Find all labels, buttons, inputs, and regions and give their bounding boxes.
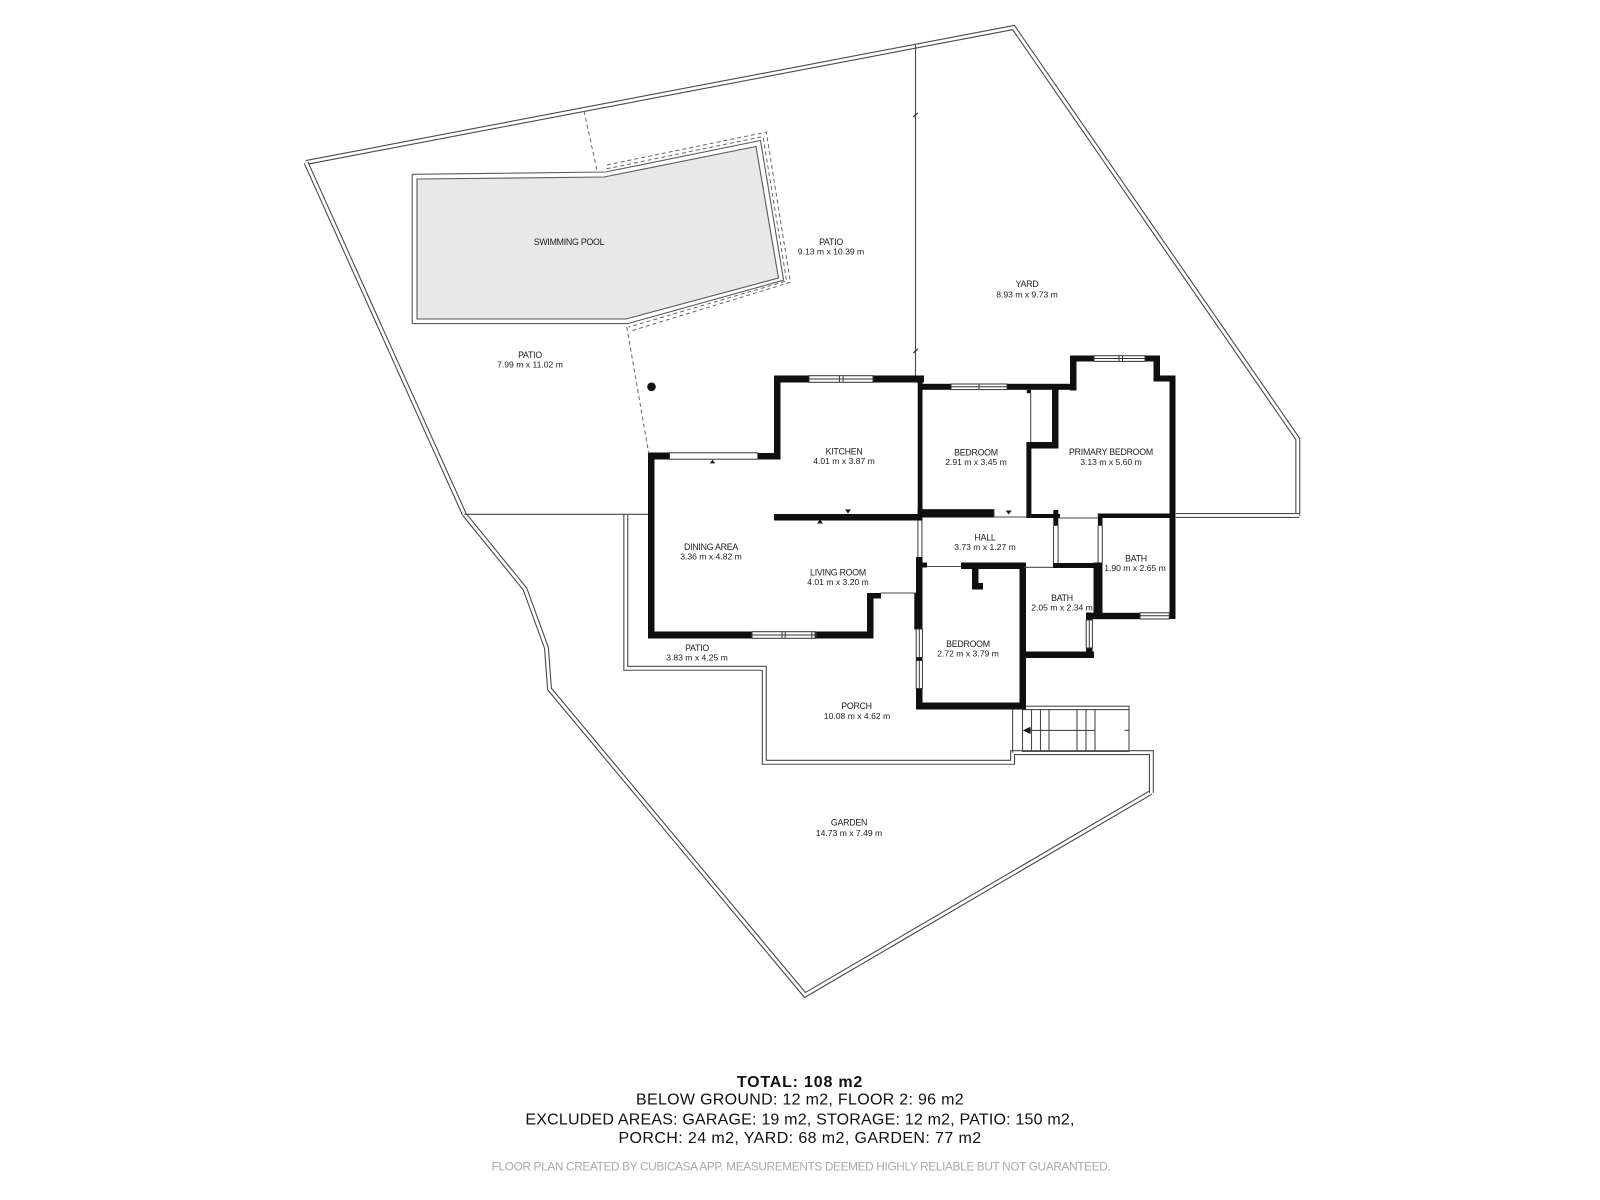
svg-text:PRIMARY BEDROOM: PRIMARY BEDROOM: [1069, 447, 1153, 457]
svg-text:PORCH: 24 m2, YARD: 68 m2, GAR: PORCH: 24 m2, YARD: 68 m2, GARDEN: 77 m2: [618, 1130, 981, 1147]
svg-text:HALL: HALL: [974, 532, 995, 542]
svg-text:2.05 m x 2.34 m: 2.05 m x 2.34 m: [1031, 603, 1093, 613]
svg-text:PATIO: PATIO: [518, 350, 542, 360]
svg-text:BEDROOM: BEDROOM: [954, 447, 998, 457]
svg-text:PORCH: PORCH: [841, 701, 872, 711]
svg-text:1.90 m x 2.65 m: 1.90 m x 2.65 m: [1104, 563, 1166, 573]
svg-text:3.83 m x 4.25 m: 3.83 m x 4.25 m: [666, 652, 728, 662]
svg-text:9.13 m x 10.39 m: 9.13 m x 10.39 m: [798, 247, 864, 257]
svg-text:BELOW GROUND: 12 m2, FLOOR 2:: BELOW GROUND: 12 m2, FLOOR 2: 96 m2: [636, 1092, 964, 1109]
svg-text:FLOOR PLAN CREATED BY CUBICASA: FLOOR PLAN CREATED BY CUBICASA APP. MEAS…: [492, 1160, 1111, 1174]
svg-text:14.73 m x 7.49 m: 14.73 m x 7.49 m: [816, 828, 882, 838]
svg-text:2.91 m x 3.45 m: 2.91 m x 3.45 m: [945, 457, 1007, 467]
svg-text:SWIMMING POOL: SWIMMING POOL: [534, 237, 605, 247]
svg-text:YARD: YARD: [1016, 279, 1039, 289]
svg-text:3.13 m x 5.60 m: 3.13 m x 5.60 m: [1080, 457, 1142, 467]
svg-text:TOTAL: 108 m2: TOTAL: 108 m2: [737, 1074, 863, 1091]
svg-text:KITCHEN: KITCHEN: [826, 446, 863, 456]
svg-text:DINING AREA: DINING AREA: [684, 542, 738, 552]
svg-text:4.01 m x 3.87 m: 4.01 m x 3.87 m: [813, 456, 875, 466]
svg-text:LIVING ROOM: LIVING ROOM: [810, 567, 866, 577]
svg-text:7.99 m x 11.02 m: 7.99 m x 11.02 m: [497, 359, 563, 369]
svg-text:PATIO: PATIO: [685, 643, 709, 653]
svg-text:EXCLUDED AREAS: GARAGE: 19 m2,: EXCLUDED AREAS: GARAGE: 19 m2, STORAGE: …: [525, 1112, 1074, 1129]
svg-text:3.73 m x 1.27 m: 3.73 m x 1.27 m: [954, 542, 1016, 552]
svg-text:8.93 m x 9.73 m: 8.93 m x 9.73 m: [996, 290, 1058, 300]
svg-text:BEDROOM: BEDROOM: [946, 639, 990, 649]
svg-text:4.01 m x 3.20 m: 4.01 m x 3.20 m: [807, 577, 869, 587]
svg-text:2.72 m x 3.79 m: 2.72 m x 3.79 m: [937, 649, 999, 659]
svg-text:BATH: BATH: [1125, 553, 1147, 563]
svg-text:PATIO: PATIO: [819, 237, 843, 247]
svg-text:3.36 m x 4.82 m: 3.36 m x 4.82 m: [680, 552, 742, 562]
svg-text:10.08 m x 4.62 m: 10.08 m x 4.62 m: [824, 711, 890, 721]
svg-text:BATH: BATH: [1051, 593, 1073, 603]
svg-text:GARDEN: GARDEN: [831, 817, 867, 827]
